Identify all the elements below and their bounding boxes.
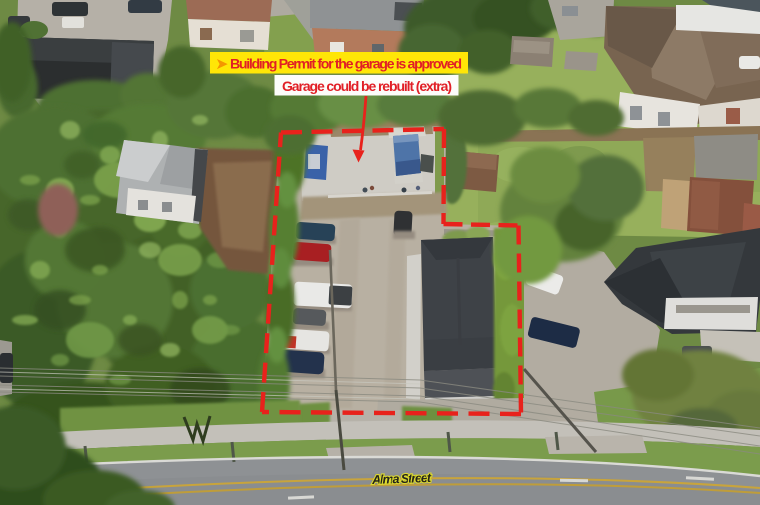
- svg-text:Garage could be rebuilt (extra: Garage could be rebuilt (extra): [282, 78, 452, 94]
- svg-text:Alma Street: Alma Street: [371, 471, 432, 487]
- svg-text:➤: ➤: [216, 56, 228, 72]
- svg-text:Building Permit for the garage: Building Permit for the garage is approv…: [230, 57, 462, 73]
